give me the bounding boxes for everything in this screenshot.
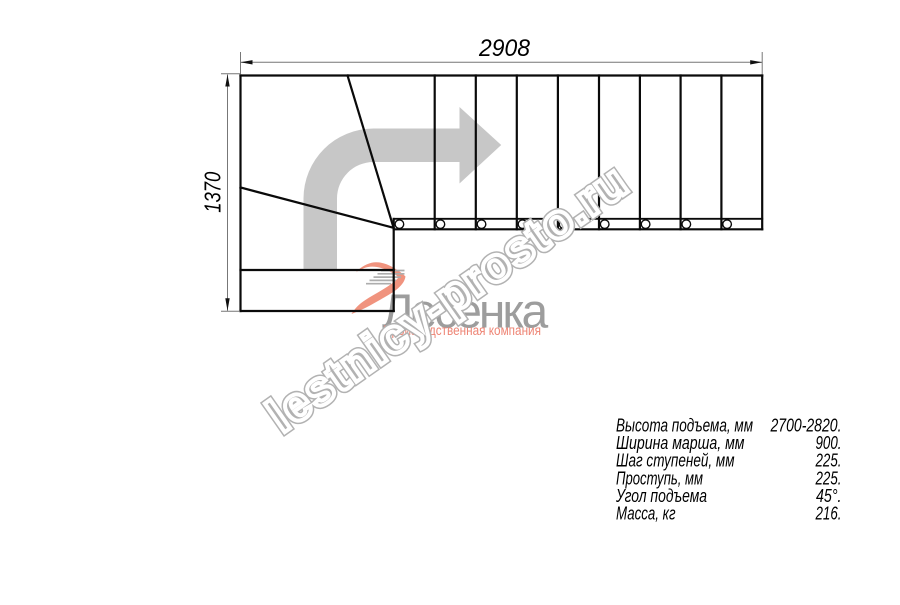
svg-text:216.: 216. (815, 503, 842, 524)
svg-text:2908: 2908 (478, 35, 530, 62)
svg-text:1370: 1370 (200, 172, 226, 213)
svg-text:Масса, кг: Масса, кг (616, 503, 676, 524)
